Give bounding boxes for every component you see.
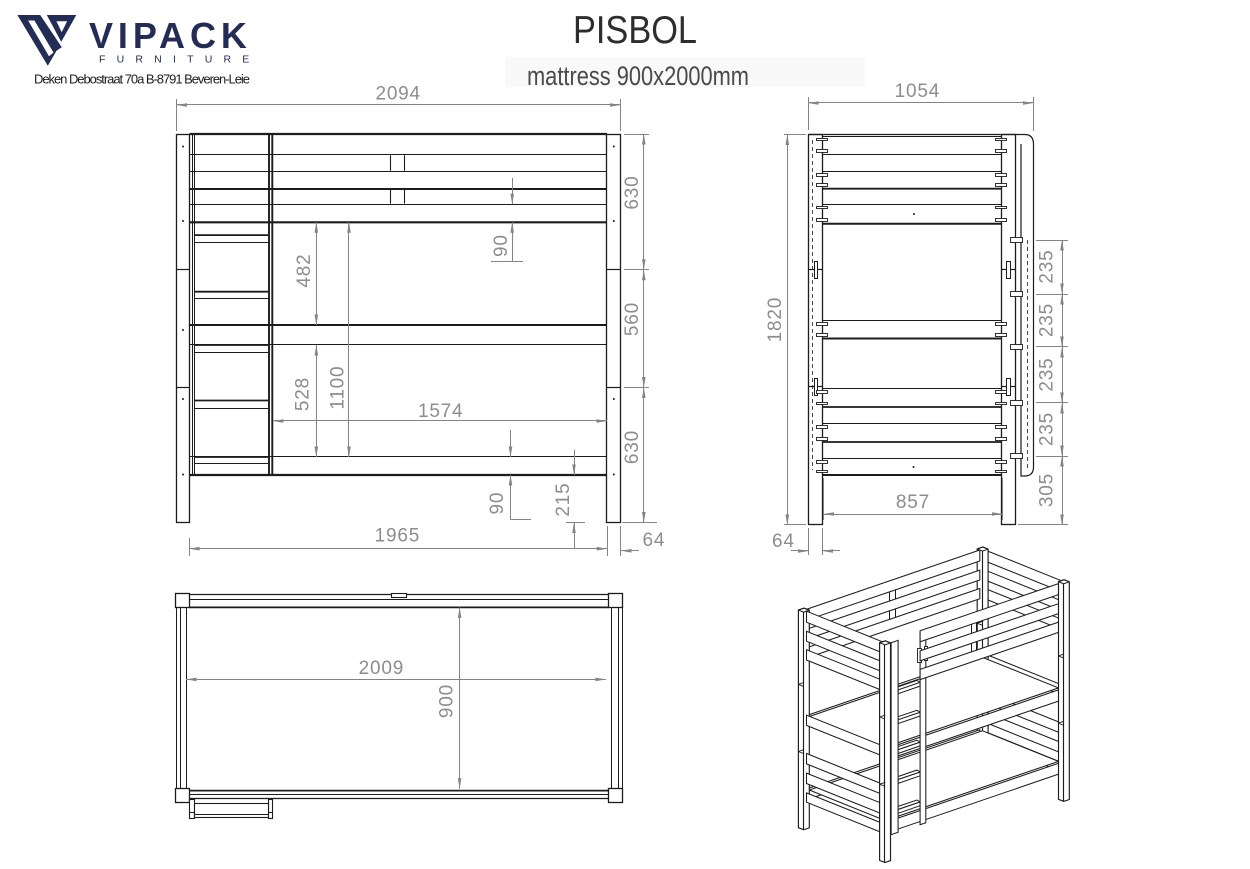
svg-text:Deken Debostraat 70a B-8791 Be: Deken Debostraat 70a B-8791 Beveren-Leie <box>34 72 250 87</box>
svg-text:1574: 1574 <box>418 401 463 422</box>
svg-text:1100: 1100 <box>328 366 349 410</box>
svg-text:VIPACK: VIPACK <box>89 15 252 56</box>
svg-text:PISBOL: PISBOL <box>573 9 697 52</box>
svg-text:305: 305 <box>1037 473 1058 507</box>
svg-text:560: 560 <box>622 302 643 336</box>
svg-text:630: 630 <box>622 430 643 464</box>
svg-text:1965: 1965 <box>375 526 420 547</box>
svg-text:235: 235 <box>1037 358 1058 392</box>
svg-text:215: 215 <box>553 483 574 517</box>
svg-text:857: 857 <box>896 492 930 513</box>
svg-text:528: 528 <box>293 377 314 411</box>
svg-text:235: 235 <box>1037 303 1058 337</box>
svg-text:90: 90 <box>491 234 512 257</box>
svg-text:FURNITURE: FURNITURE <box>99 54 260 66</box>
svg-text:64: 64 <box>643 530 666 551</box>
svg-text:2094: 2094 <box>375 84 420 105</box>
svg-text:1820: 1820 <box>765 297 786 342</box>
svg-text:235: 235 <box>1037 250 1058 284</box>
svg-text:2009: 2009 <box>359 658 404 679</box>
svg-text:mattress 900x2000mm: mattress 900x2000mm <box>527 61 749 91</box>
svg-text:64: 64 <box>772 531 795 552</box>
svg-text:235: 235 <box>1037 412 1058 446</box>
svg-text:482: 482 <box>294 254 315 288</box>
svg-text:900: 900 <box>437 684 458 718</box>
svg-text:1054: 1054 <box>895 81 940 102</box>
svg-text:90: 90 <box>487 492 508 515</box>
svg-text:630: 630 <box>622 176 643 210</box>
